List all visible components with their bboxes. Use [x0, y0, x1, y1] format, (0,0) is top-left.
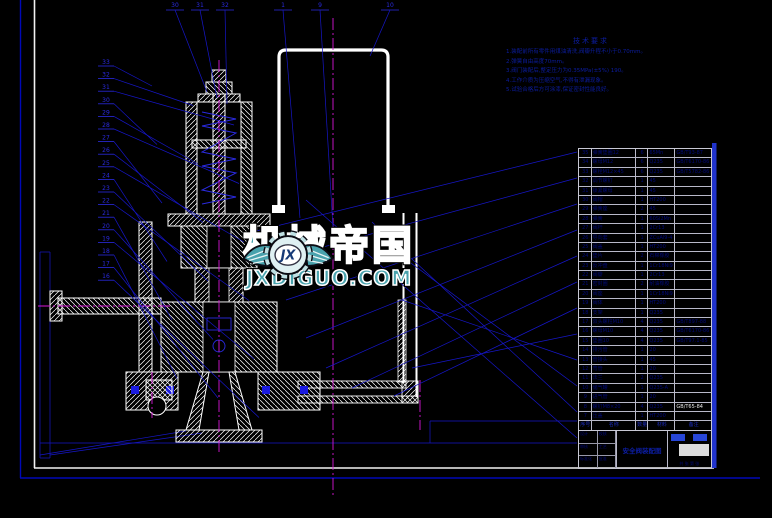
table-cell: 45 — [648, 356, 675, 364]
table-cell: Q235 — [648, 318, 675, 326]
tech-req-item: 1.装配前所有零件用煤油清洗,阀瓣升程不小于0.70mm。 — [506, 48, 676, 58]
table-cell: 1 — [636, 290, 649, 298]
balloon-number: 26 — [102, 147, 110, 154]
balloon-number: 21 — [102, 210, 110, 217]
table-cell: 1 — [636, 309, 649, 317]
table-cell — [675, 412, 711, 420]
leader-line — [283, 10, 300, 218]
table-cell: 2 — [636, 205, 649, 213]
table-cell: 储气罐 — [592, 384, 636, 392]
table-cell: 2 — [636, 374, 649, 382]
table-cell: 65Mn — [648, 149, 675, 157]
balloon-number: 30 — [171, 2, 179, 9]
leader-line — [320, 10, 333, 228]
leader-line — [114, 116, 198, 164]
table-cell — [675, 346, 711, 354]
table-cell: 1 — [636, 177, 649, 185]
table-row: 29弹簧座245 — [579, 205, 711, 214]
table-cell: 阀瓣 — [592, 271, 636, 279]
drawing-title: 安全阀装配图 — [623, 445, 662, 455]
title-block-signatures: 设计校核审核工艺标准化批准 — [579, 431, 617, 468]
table-cell — [675, 299, 711, 307]
balloon-number: 29 — [102, 109, 110, 116]
balloon-number: 19 — [102, 235, 110, 242]
table-cell — [675, 252, 711, 260]
table-cell: 螺母M12 — [592, 158, 636, 166]
table-cell — [675, 234, 711, 242]
table-row: 14排污管120 — [579, 346, 711, 355]
table-cell: 阀杆 — [592, 224, 636, 232]
leader-line — [394, 308, 577, 396]
table-cell: 6 — [636, 149, 649, 157]
title-block: 设计校核审核工艺标准化批准 安全阀装配图 共 张 第 张 — [578, 430, 712, 469]
table-cell: 阀盖 — [592, 243, 636, 251]
table-cell: 13 — [579, 356, 592, 364]
table-cell: HT200 — [648, 412, 675, 420]
table-cell — [675, 187, 711, 195]
table-cell: 1Cr18Ni9 — [648, 290, 675, 298]
table-cell: 20 — [648, 393, 675, 401]
table-row: 30阀帽1HT200 — [579, 196, 711, 205]
table-cell: 12 — [579, 365, 592, 373]
table-cell: Q235 — [648, 374, 675, 382]
table-cell: 1Cr18Ni9 — [648, 262, 675, 270]
table-cell — [675, 290, 711, 298]
table-cell: 耐油橡胶 — [648, 280, 675, 288]
balloon-number: 31 — [196, 2, 204, 9]
table-row: 13管接头145 — [579, 356, 711, 365]
table-cell — [675, 215, 711, 223]
table-row: 26导向套1ZCuAl9-4 — [579, 234, 711, 243]
table-cell: 阀体 — [592, 299, 636, 307]
balloon-number: 17 — [102, 261, 110, 268]
table-cell: 24 — [579, 252, 592, 260]
table-cell: 45 — [648, 187, 675, 195]
title-block-row: 标准化批准 — [579, 456, 616, 468]
table-cell: 1 — [636, 187, 649, 195]
table-cell: 21 — [579, 280, 592, 288]
table-cell: 35 — [579, 149, 592, 157]
table-cell: 法兰 — [592, 374, 636, 382]
table-cell: 18 — [579, 309, 592, 317]
cad-viewport: 333231302928272625242322212019181716 303… — [0, 0, 772, 518]
table-row: 34螺母M126Q235GB/T6170-86 — [579, 158, 711, 167]
table-cell: 螺钉M8×20 — [592, 403, 636, 411]
watermark-logo[interactable]: JX 机械帝国 JXDIGUO.COM — [241, 218, 547, 296]
table-row: 35弹簧垫圈12665MnGB/T93-87 — [579, 149, 711, 158]
table-cell: 22 — [579, 271, 592, 279]
table-cell: 管接头 — [592, 356, 636, 364]
title-block-row: 设计校核 — [579, 431, 616, 444]
leader-line — [402, 300, 577, 360]
table-row: 15垫圈104Q235GB/T97.1-85 — [579, 337, 711, 346]
frame-highlight-bar — [712, 143, 717, 468]
table-cell: 2Cr13 — [648, 224, 675, 232]
balloon-number: 33 — [102, 59, 110, 66]
scale-box-2 — [693, 434, 707, 441]
table-cell: 序号 — [579, 421, 592, 429]
table-cell: 4 — [636, 318, 649, 326]
table-cell: Q235 — [648, 327, 675, 335]
table-cell: 进气管 — [592, 393, 636, 401]
table-cell: 14 — [579, 346, 592, 354]
table-cell: 弹簧座 — [592, 205, 636, 213]
table-cell: 压盖 — [592, 412, 636, 420]
table-cell: 45 — [648, 177, 675, 185]
table-cell — [675, 205, 711, 213]
table-cell: 调节螺钉 — [592, 177, 636, 185]
table-cell: GB/T97.1-85 — [675, 337, 711, 345]
table-cell: 2 — [636, 280, 649, 288]
table-cell: GB/T5782-86 — [675, 168, 711, 176]
table-cell: HT200 — [648, 196, 675, 204]
balloon-number: 30 — [102, 97, 110, 104]
table-row: 18支架1Q235 — [579, 309, 711, 318]
table-cell: HT200 — [648, 243, 675, 251]
table-cell: 1 — [636, 365, 649, 373]
leader-line — [114, 79, 193, 106]
table-cell: 数量 — [636, 421, 649, 429]
balloon-number: 22 — [102, 198, 110, 205]
balloon-number: 10 — [386, 2, 394, 9]
table-row: 33螺栓M12×456Q235GB/T5782-86 — [579, 168, 711, 177]
balloon-number: 27 — [102, 135, 110, 142]
title-block-label: 工艺 — [598, 444, 617, 456]
table-cell: 1 — [636, 271, 649, 279]
sheet-count: 共 张 第 张 — [668, 461, 711, 467]
table-cell: 密封圈 — [592, 280, 636, 288]
table-cell: 8 — [579, 403, 592, 411]
table-cell: 6 — [636, 168, 649, 176]
tech-req-item: 3.阀门装配后,整定压力为0.35MPa(±5%) 190。 — [506, 67, 676, 77]
table-cell: 4 — [636, 337, 649, 345]
table-cell: 排污管 — [592, 346, 636, 354]
balloon-number: 20 — [102, 223, 110, 230]
winged-gear-emblem: JX — [241, 218, 335, 292]
table-cell: Q235 — [648, 158, 675, 166]
table-cell: 螺栓M12×45 — [592, 168, 636, 176]
table-cell: 9 — [579, 393, 592, 401]
table-cell: 阀帽 — [592, 196, 636, 204]
table-cell: 32 — [579, 177, 592, 185]
top-balloon-group: 3031321910 — [166, 2, 399, 228]
table-row: 17双头螺柱M104Q235GB/T897-88 — [579, 318, 711, 327]
table-cell: 弯管 — [592, 365, 636, 373]
table-cell: 11 — [579, 374, 592, 382]
tech-req-item: 4.工作介质为压缩空气,不得有泄漏现象。 — [506, 77, 676, 87]
table-cell: 26 — [579, 234, 592, 242]
table-cell: 34 — [579, 158, 592, 166]
table-row: 7压盖1HT200 — [579, 412, 711, 421]
table-cell: 7 — [579, 412, 592, 420]
table-row: 31锁紧螺母145 — [579, 187, 711, 196]
table-cell: 双头螺柱M10 — [592, 318, 636, 326]
table-cell: 垫片 — [592, 252, 636, 260]
table-row: 11法兰2Q235 — [579, 374, 711, 383]
table-row: 21密封圈2耐油橡胶 — [579, 280, 711, 289]
table-row: 9进气管120 — [579, 393, 711, 402]
table-cell: 20 — [648, 346, 675, 354]
table-cell: 1 — [636, 262, 649, 270]
table-row: 27阀杆12Cr13 — [579, 224, 711, 233]
table-cell: Q235 — [648, 337, 675, 345]
table-cell: 名称 — [592, 421, 636, 429]
table-cell — [675, 224, 711, 232]
table-cell: Q235 — [648, 168, 675, 176]
table-cell: 1 — [636, 412, 649, 420]
table-cell: GB/T897-88 — [675, 318, 711, 326]
table-cell — [675, 271, 711, 279]
title-block-label: 审核 — [579, 444, 598, 456]
table-cell: 1 — [636, 299, 649, 307]
table-cell: HT200 — [648, 299, 675, 307]
table-cell: 垫圈10 — [592, 337, 636, 345]
table-cell — [675, 280, 711, 288]
table-cell — [675, 309, 711, 317]
table-row: 24垫片2石棉橡胶 — [579, 252, 711, 261]
table-cell: 1 — [636, 224, 649, 232]
table-cell — [675, 356, 711, 364]
table-cell — [675, 262, 711, 270]
table-cell — [675, 384, 711, 392]
table-cell: Q235 — [648, 403, 675, 411]
balloon-number: 18 — [102, 248, 110, 255]
table-cell: 23 — [579, 262, 592, 270]
table-cell: 锁紧螺母 — [592, 187, 636, 195]
table-cell: ZCuAl9-4 — [648, 234, 675, 242]
table-cell: 备注 — [675, 421, 711, 429]
table-row: 23反冲盘11Cr18Ni9 — [579, 262, 711, 271]
table-cell: 31 — [579, 187, 592, 195]
table-cell: 10 — [579, 384, 592, 392]
table-cell: 19 — [579, 299, 592, 307]
table-cell: 4 — [636, 403, 649, 411]
table-cell: 45 — [648, 205, 675, 213]
balloon-number: 24 — [102, 172, 110, 179]
table-cell: 25 — [579, 243, 592, 251]
table-row: 25阀盖1HT200 — [579, 243, 711, 252]
table-cell: 导向套 — [592, 234, 636, 242]
balloon-number: 1 — [281, 2, 285, 9]
table-cell: Q235 — [648, 309, 675, 317]
table-cell: 材料 — [648, 421, 675, 429]
table-cell: 60Si2Mn — [648, 215, 675, 223]
table-row: 16螺母M104Q235GB/T6170-86 — [579, 327, 711, 336]
table-cell: 1 — [636, 196, 649, 204]
sheet-box — [679, 444, 709, 456]
title-block-label: 标准化 — [579, 456, 598, 468]
table-cell: 1 — [636, 346, 649, 354]
table-cell: GB/T65-84 — [675, 403, 711, 411]
table-cell: GB/T93-87 — [675, 149, 711, 157]
leader-line — [412, 334, 577, 368]
table-cell: 28 — [579, 215, 592, 223]
balloon-number: 23 — [102, 185, 110, 192]
table-cell: GB/T6170-86 — [675, 327, 711, 335]
table-cell: 2 — [636, 252, 649, 260]
table-cell — [675, 393, 711, 401]
table-cell: 15 — [579, 337, 592, 345]
emblem-jx-text: JX — [278, 249, 297, 264]
tech-req-item: 2.弹簧自由高度70mm。 — [506, 58, 676, 68]
table-cell: 4 — [636, 327, 649, 335]
technical-requirements: 技术要求 1.装配前所有零件用煤油清洗,阀瓣升程不小于0.70mm。2.弹簧自由… — [506, 36, 676, 96]
table-cell: 20 — [579, 290, 592, 298]
table-cell: 2Cr13 — [648, 271, 675, 279]
scale-box-1 — [671, 434, 685, 441]
table-cell: 1 — [636, 215, 649, 223]
table-cell: 33 — [579, 168, 592, 176]
balloon-number: 28 — [102, 122, 110, 129]
tech-req-item: 5.试验合格后方可涂漆,保证密封性能良好。 — [506, 86, 676, 96]
table-cell: 1 — [636, 393, 649, 401]
table-cell: 16 — [579, 327, 592, 335]
table-cell: 29 — [579, 205, 592, 213]
table-cell — [675, 374, 711, 382]
table-cell: 20 — [648, 365, 675, 373]
leader-line — [352, 282, 577, 388]
table-row: 8螺钉M8×204Q235GB/T65-84 — [579, 403, 711, 412]
table-cell: GB/T6170-86 — [675, 158, 711, 166]
table-cell: 27 — [579, 224, 592, 232]
balloon-number: 31 — [102, 84, 110, 91]
balloon-number: 9 — [318, 2, 322, 9]
table-row: 19阀体1HT200 — [579, 299, 711, 308]
table-cell: 石棉橡胶 — [648, 252, 675, 260]
title-block-scale-area: 共 张 第 张 — [668, 431, 711, 468]
table-cell — [675, 365, 711, 373]
table-cell — [675, 243, 711, 251]
table-cell: 支架 — [592, 309, 636, 317]
balloon-number: 32 — [102, 72, 110, 79]
table-row: 28弹簧160Si2Mn — [579, 215, 711, 224]
table-row: 20阀座11Cr18Ni9 — [579, 290, 711, 299]
table-cell: 1 — [636, 384, 649, 392]
title-block-row: 审核工艺 — [579, 444, 616, 457]
table-row: 12弯管120 — [579, 365, 711, 374]
table-row: 22阀瓣12Cr13 — [579, 271, 711, 280]
table-cell: 弹簧垫圈12 — [592, 149, 636, 157]
table-cell: 1 — [636, 234, 649, 242]
table-cell — [675, 177, 711, 185]
table-cell: 1 — [636, 243, 649, 251]
title-block-label: 批准 — [598, 456, 617, 468]
table-cell: 6 — [636, 158, 649, 166]
table-cell: 弹簧 — [592, 215, 636, 223]
balloon-number: 16 — [102, 273, 110, 280]
table-cell — [675, 196, 711, 204]
title-block-label: 校核 — [598, 431, 617, 443]
table-row: 10储气罐1Q235-A — [579, 384, 711, 393]
table-cell: 17 — [579, 318, 592, 326]
table-row: 32调节螺钉145 — [579, 177, 711, 186]
title-block-label: 设计 — [579, 431, 598, 443]
table-cell: 阀座 — [592, 290, 636, 298]
table-cell: 30 — [579, 196, 592, 204]
parts-table: 35弹簧垫圈12665MnGB/T93-8734螺母M126Q235GB/T61… — [578, 148, 712, 431]
balloon-number: 32 — [221, 2, 229, 9]
tech-req-title: 技术要求 — [506, 36, 676, 46]
table-cell: 1 — [636, 356, 649, 364]
table-cell: Q235-A — [648, 384, 675, 392]
table-cell: 反冲盘 — [592, 262, 636, 270]
leader-line — [114, 66, 152, 86]
table-cell: 螺母M10 — [592, 327, 636, 335]
balloon-number: 25 — [102, 160, 110, 167]
